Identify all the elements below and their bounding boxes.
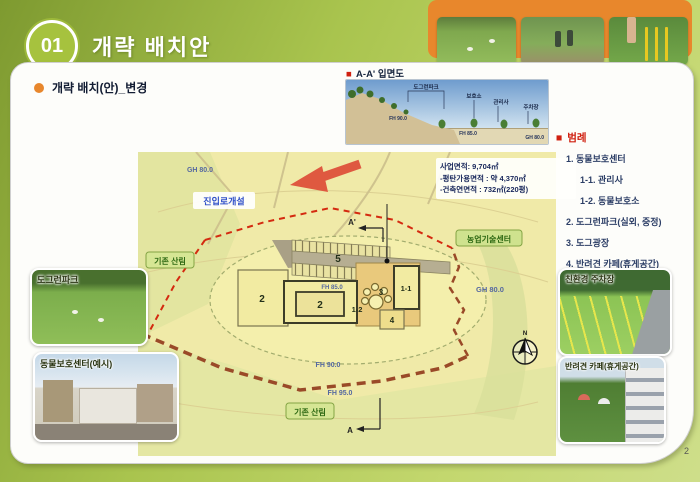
agility-pole-icon xyxy=(655,27,658,61)
label-office-1-1: 1-1 xyxy=(401,284,412,293)
driveway xyxy=(35,424,177,440)
legend-item: 3. 도그광장 xyxy=(566,236,698,249)
legend-title-label: 범례 xyxy=(567,132,586,144)
agility-pole-icon xyxy=(665,27,668,61)
elev-fh90: FH 90.0 xyxy=(389,116,407,122)
elevation-drawing: 도그런파크 보호소 관리사 주차장 FH 90.0 FH 85.0 GH 80.… xyxy=(345,79,549,145)
label-dogrun-bldg-2: 2 xyxy=(317,300,323,311)
fh95-label: FH 95.0 xyxy=(328,390,353,397)
building-main xyxy=(79,388,137,424)
forest-bottom-label: 기존 산림 xyxy=(294,407,326,417)
photo-eco-parking: 친환경 주차장 xyxy=(558,268,672,356)
elevation-title: ■ A-A' 입면도 xyxy=(346,66,404,80)
photo-label: 도그런파크 xyxy=(37,273,78,286)
photo-dogrun-park: 도그런파크 xyxy=(30,268,148,346)
elev-fh85: FH 85.0 xyxy=(459,131,477,137)
page-number: 2 xyxy=(684,446,689,456)
project-area-box: 사업면적: 9,704㎡ -평탄가용면적 : 약 4,370㎡ -건축연면적 :… xyxy=(436,158,576,199)
elev-gh80: GH 80.0 xyxy=(525,135,544,141)
access-road-label: 진입로개설 xyxy=(203,196,244,207)
elev-label-shelter: 보호소 xyxy=(466,92,481,100)
elev-label-office: 관리사 xyxy=(493,98,509,106)
slide-number: 01 xyxy=(41,35,63,58)
fh85-label: FH 85.0 xyxy=(321,285,343,291)
fh90-label: FH 90.0 xyxy=(316,362,341,369)
photo-people-walking-dogs xyxy=(521,17,604,65)
umbrella-icon xyxy=(598,398,610,404)
photo-label: 동물보호센터(예시) xyxy=(40,357,112,370)
umbrella-icon xyxy=(578,394,590,400)
legend-item: 1. 동물보호센터 xyxy=(566,152,698,165)
photo-label: 친환경 주차장 xyxy=(565,273,614,285)
legend-title: ■ 범례 xyxy=(556,130,698,145)
orange-bullet-icon xyxy=(34,83,44,93)
marker-a-label: A xyxy=(347,426,353,435)
dog-icon xyxy=(467,47,473,51)
label-cafe-4: 4 xyxy=(390,316,395,325)
photo-dog-agility xyxy=(609,17,688,65)
legend-item: 1-1. 관리사 xyxy=(580,173,698,186)
building-tower xyxy=(43,380,73,422)
person-icon xyxy=(555,31,561,47)
north-label: N xyxy=(523,331,527,337)
area-line-1: 사업면적: 9,704㎡ xyxy=(440,161,572,173)
label-plaza-3: 3 xyxy=(379,288,384,297)
label-shelter-1-2: 1-2 xyxy=(352,305,363,314)
gh80-label: GH 80.0 xyxy=(476,285,504,294)
label-dogrun-2: 2 xyxy=(259,294,265,305)
parking-grid xyxy=(560,296,644,354)
gh80-top-label: GH 80.0 xyxy=(187,167,213,174)
area-line-3: -건축연면적 : 732㎡(220평) xyxy=(440,184,572,196)
photo-dogs-in-park xyxy=(437,17,516,65)
section-heading-label: 개략 배치(안)_변경 xyxy=(52,79,147,96)
cafe-building xyxy=(625,368,664,442)
elev-label-parking: 주차장 xyxy=(523,103,538,111)
dog-icon xyxy=(72,310,78,314)
person-icon xyxy=(567,30,573,46)
building-wing xyxy=(137,384,173,422)
page-title: 개략 배치안 xyxy=(92,30,211,62)
legend-item: 1-2. 동물보호소 xyxy=(580,194,698,207)
forest-left-label: 기존 산림 xyxy=(154,256,186,266)
area-line-2: -평탄가용면적 : 약 4,370㎡ xyxy=(440,173,572,185)
person-legs-icon xyxy=(627,17,636,43)
photo-label: 반려견 카페(휴게공간) xyxy=(565,361,639,372)
slide: 01 개략 배치안 개략 배치(안)_변경 ■ A-A' 입면도 xyxy=(0,0,700,482)
agility-pole-icon xyxy=(645,27,648,61)
elev-label-dogrun: 도그런파크 xyxy=(413,83,438,91)
agri-center-label: 농업기술센터 xyxy=(467,234,511,244)
photo-pet-cafe: 반려견 카페(휴게공간) xyxy=(558,356,666,444)
label-parking-5: 5 xyxy=(335,254,341,265)
legend-item: 2. 도그런파크(실외, 중정) xyxy=(566,215,698,228)
dog-icon xyxy=(489,39,495,43)
photo-animal-center: 동물보호센터(예시) xyxy=(33,352,179,442)
dog-icon xyxy=(98,318,104,322)
marker-a-prime-label: A' xyxy=(348,218,356,227)
square-bullet-icon: ■ xyxy=(556,132,562,144)
section-heading: 개략 배치(안)_변경 xyxy=(34,79,147,96)
